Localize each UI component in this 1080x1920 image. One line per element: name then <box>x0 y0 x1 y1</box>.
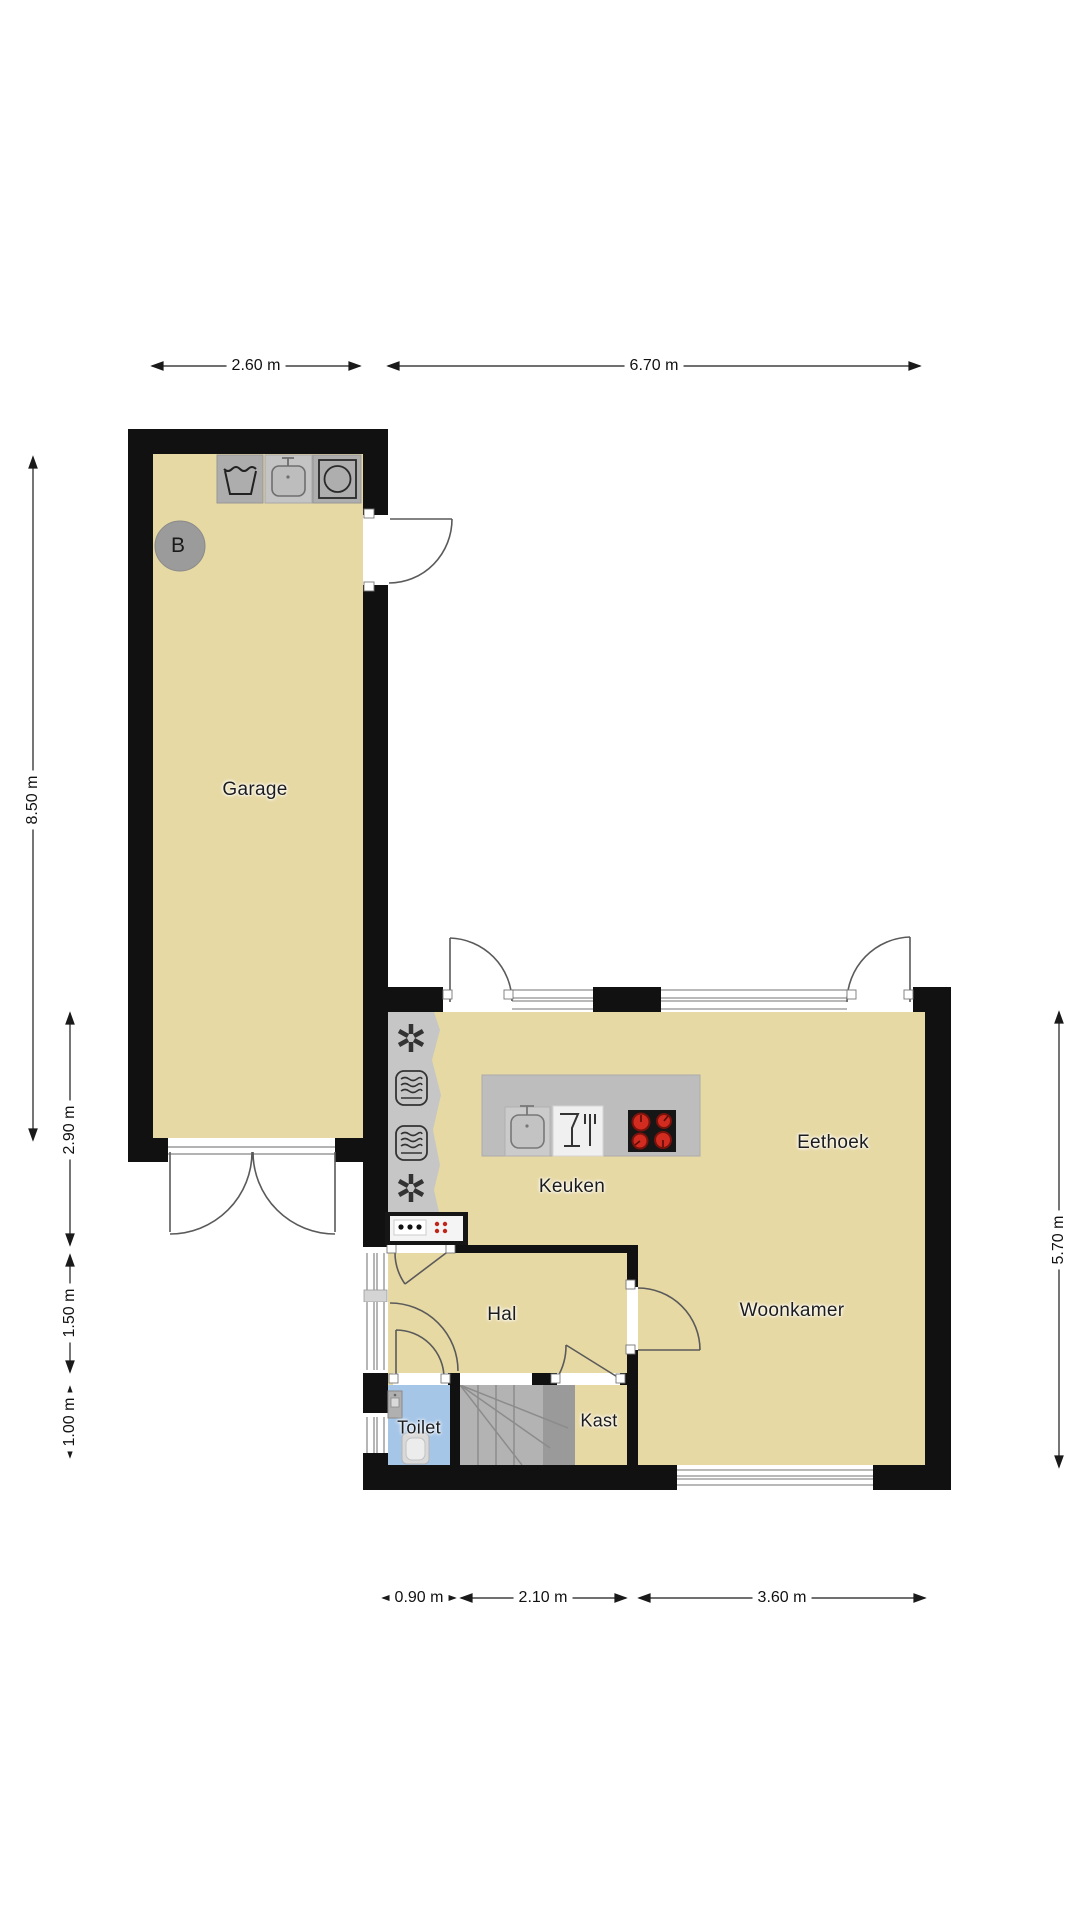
room-label-garage: Garage <box>222 779 287 801</box>
garage-right-wall-upper <box>363 454 388 515</box>
dim-bottom-1: 0.90 m <box>390 1589 449 1607</box>
room-label-hal: Hal <box>487 1304 516 1326</box>
window-keuken <box>512 987 593 1012</box>
hand-sink-icon <box>388 1391 402 1418</box>
stair-opening <box>460 1373 532 1385</box>
room-label-keuken: Keuken <box>539 1176 605 1198</box>
dim-left-garage: 8.50 m <box>24 771 42 830</box>
dim-bottom-3: 3.60 m <box>753 1589 812 1607</box>
dim-top-garage: 2.60 m <box>227 357 286 375</box>
dim-top-main: 6.70 m <box>625 357 684 375</box>
floorplan-drawing <box>0 0 1080 1920</box>
garage-top-wall <box>128 429 388 454</box>
left-wall-corner <box>363 1453 388 1490</box>
cooktop-icon <box>628 1110 676 1152</box>
boiler-icon <box>385 1212 468 1245</box>
garage-double-door <box>168 1138 335 1234</box>
garage-left-wall <box>128 454 153 1162</box>
dim-left-toilet: 1.00 m <box>61 1393 79 1452</box>
kitchen-counter <box>482 1075 700 1156</box>
dishwasher-safe-icon <box>553 1106 603 1156</box>
window-mullion <box>364 1290 387 1302</box>
eethoek-exterior-door <box>847 937 913 1012</box>
kitchen-sink-icon <box>505 1106 550 1156</box>
floorplan-page: Garage Keuken Eethoek Woonkamer Hal Toil… <box>0 0 1080 1920</box>
room-label-toilet: Toilet <box>397 1418 441 1439</box>
marker-b-label: B <box>171 534 185 558</box>
garage-side-door <box>363 509 452 591</box>
keuken-exterior-door <box>443 938 513 1012</box>
dim-left-keuken: 2.90 m <box>61 1101 79 1160</box>
garage-bottom-pier-left <box>128 1138 168 1162</box>
window-hal-upper <box>363 1253 388 1290</box>
washing-machine-box <box>313 455 361 503</box>
room-label-eethoek: Eethoek <box>797 1132 869 1154</box>
room-label-woonkamer: Woonkamer <box>740 1300 845 1322</box>
main-top-wall-c <box>913 987 951 1012</box>
washtub-box <box>217 455 263 503</box>
window-woonkamer <box>677 1467 873 1488</box>
dim-left-hal: 1.50 m <box>61 1284 79 1343</box>
left-wall-pier <box>363 1373 388 1413</box>
main-top-wall-b <box>593 987 661 1012</box>
main-bottom-wall-left <box>363 1465 677 1490</box>
toilet-right-wall <box>450 1385 460 1465</box>
hal-kast-right-wall <box>627 1350 638 1465</box>
garage-appliances <box>217 455 361 503</box>
room-label-kast: Kast <box>580 1411 617 1432</box>
main-top-wall-a <box>363 987 443 1012</box>
hal-top-wall <box>448 1245 638 1253</box>
dim-right-main: 5.70 m <box>1050 1211 1068 1270</box>
dim-bottom-2: 2.10 m <box>514 1589 573 1607</box>
main-right-wall <box>925 1012 951 1490</box>
main-bottom-wall-right <box>873 1465 951 1490</box>
window-toilet <box>363 1417 388 1453</box>
window-eethoek <box>661 987 847 1012</box>
stairs <box>460 1385 575 1465</box>
garage-bottom-pier-right <box>335 1138 388 1162</box>
window-hal-lower <box>363 1302 388 1370</box>
